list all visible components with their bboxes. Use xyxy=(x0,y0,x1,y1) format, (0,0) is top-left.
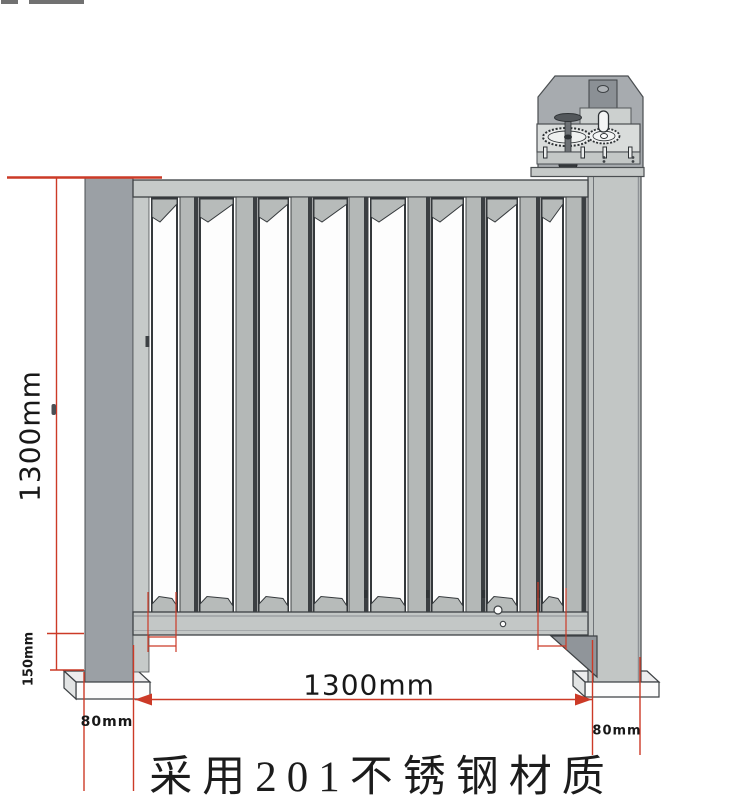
mount-bolt xyxy=(544,147,548,158)
bolt-dot xyxy=(632,156,635,159)
screw-mark xyxy=(482,590,486,598)
bolt-dot xyxy=(603,160,606,163)
screw-mark xyxy=(426,590,430,598)
gate-opening xyxy=(487,198,517,612)
material-caption: 采用201不锈钢材质 xyxy=(149,742,615,800)
dim-width-label: 1300mm xyxy=(303,669,435,702)
hinge-mark xyxy=(146,336,150,347)
dim-right-post-label: 80mm xyxy=(592,724,641,739)
gate-bar-shade xyxy=(481,197,485,612)
dim-rail-clearance-label: 150mm xyxy=(22,632,37,686)
mount-bolt xyxy=(581,147,585,158)
opening-bottom-bevel xyxy=(259,597,288,613)
diagram-page: 1300mm 150mm 80mm 1300mm 80mm 采用201不锈钢材质 xyxy=(0,0,752,800)
bolt-dot xyxy=(632,160,635,163)
motor-bolt xyxy=(598,86,609,93)
gate-balusters xyxy=(152,197,563,612)
gate-bar-shade xyxy=(364,197,368,612)
gate-opening xyxy=(259,198,288,612)
bolt-hole xyxy=(494,606,502,614)
opening-bottom-bevel xyxy=(200,597,233,613)
gear-small-hub xyxy=(601,134,608,139)
gate-bar-shade xyxy=(194,197,198,612)
drive-mechanism xyxy=(531,76,644,177)
dim-line-mark xyxy=(52,404,57,415)
opening-bottom-bevel xyxy=(432,597,463,613)
gate-bar-shade xyxy=(308,197,312,612)
gate-bottom-rail xyxy=(133,612,588,635)
gate-opening xyxy=(200,198,233,612)
gate-bar-shade xyxy=(426,197,430,612)
opening-bottom-bevel xyxy=(371,597,405,613)
gate-right-stile-shade xyxy=(582,197,586,612)
dim-left-post-label: 80mm xyxy=(81,714,134,730)
dim-height-label: 1300mm xyxy=(14,370,47,502)
motor-block xyxy=(589,80,617,109)
bolt-hole xyxy=(500,621,505,626)
mechanism-base-plate xyxy=(531,168,644,177)
gate-opening xyxy=(542,198,563,612)
gate-bar-shade xyxy=(536,197,540,612)
gear-large-hub xyxy=(564,135,572,140)
mount-strip xyxy=(537,152,640,164)
gate-opening xyxy=(371,198,405,612)
gate-top-rail xyxy=(133,180,588,197)
gate-opening xyxy=(314,198,347,612)
gate-bar-shade xyxy=(253,197,257,612)
gate-opening xyxy=(152,198,177,612)
right-post xyxy=(588,176,641,683)
opening-bottom-bevel xyxy=(314,597,347,613)
bolt-dot xyxy=(603,156,606,159)
left-post xyxy=(85,178,133,683)
mount-bolt xyxy=(629,147,633,158)
left-post-side-face xyxy=(133,180,149,672)
base-plate-right-front xyxy=(585,682,659,697)
screw-mark xyxy=(364,590,368,598)
crank-handle xyxy=(555,114,582,122)
slot-pin xyxy=(599,111,609,132)
base-plate-left-front xyxy=(76,682,150,699)
gate-opening xyxy=(432,198,463,612)
